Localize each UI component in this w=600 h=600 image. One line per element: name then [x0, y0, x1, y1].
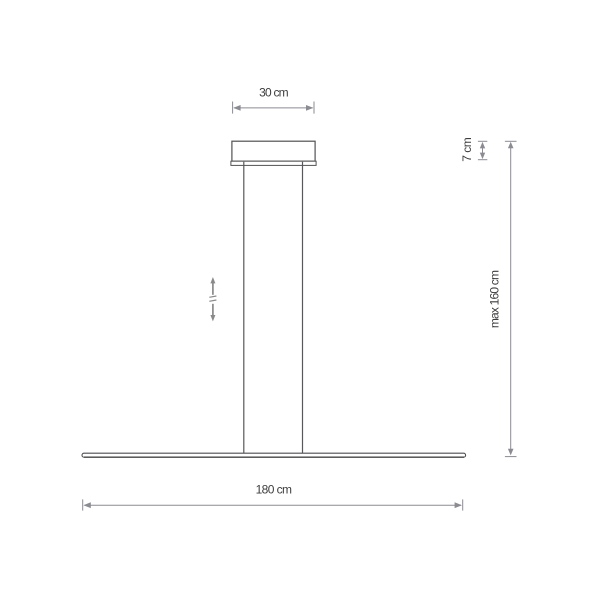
- svg-text:180 cm: 180 cm: [256, 482, 292, 496]
- svg-text:max 160 cm: max 160 cm: [488, 270, 502, 328]
- svg-text:30 cm: 30 cm: [259, 86, 288, 100]
- svg-text:7 cm: 7 cm: [460, 137, 474, 162]
